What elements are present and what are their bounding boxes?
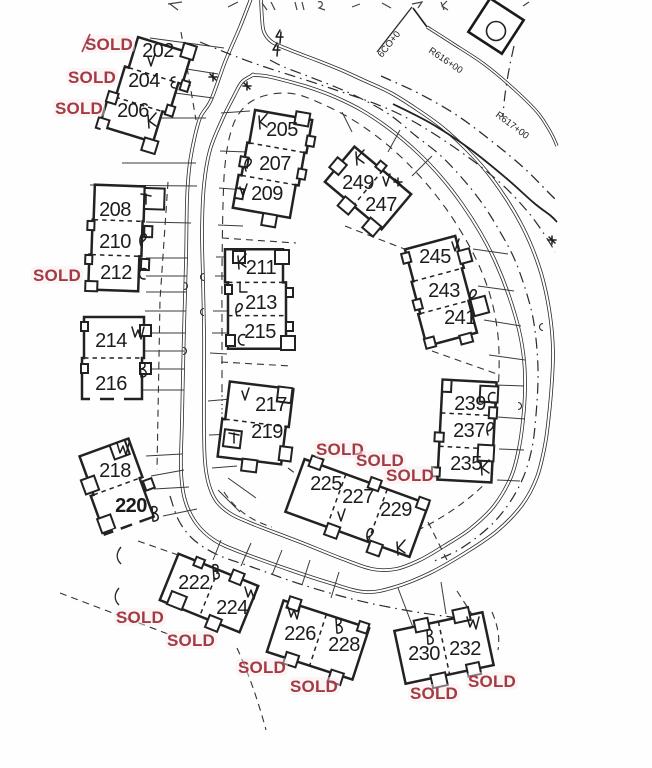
svg-text:232: 232 [449,638,481,660]
svg-text:SOLD: SOLD [68,68,116,87]
svg-text:219: 219 [251,421,283,443]
svg-text:SOLD: SOLD [55,99,103,118]
svg-text:SOLD: SOLD [116,608,164,627]
svg-text:206: 206 [117,100,149,122]
svg-text:247: 247 [365,194,397,216]
svg-text:235: 235 [450,453,482,475]
svg-text:214: 214 [95,330,127,352]
svg-text:217: 217 [255,394,287,416]
svg-text:237: 237 [453,420,485,442]
svg-text:SOLD: SOLD [468,672,516,691]
svg-text:243: 243 [428,280,460,302]
svg-text:202: 202 [142,40,174,62]
svg-text:207: 207 [259,153,291,175]
svg-text:226: 226 [284,623,316,645]
svg-text:239: 239 [454,393,486,415]
svg-text:SOLD: SOLD [410,684,458,703]
svg-text:229: 229 [380,499,412,521]
svg-text:227: 227 [342,486,374,508]
svg-text:225: 225 [310,473,342,495]
svg-text:SOLD: SOLD [290,677,338,696]
svg-text:SOLD: SOLD [238,658,286,677]
svg-text:228: 228 [328,634,360,656]
svg-text:218: 218 [99,460,131,482]
svg-text:222: 222 [178,572,210,594]
svg-text:224: 224 [216,597,248,619]
svg-text:210: 210 [99,231,131,253]
svg-text:249: 249 [342,172,374,194]
svg-text:205: 205 [266,119,298,141]
svg-text:215: 215 [244,321,276,343]
svg-text:SOLD: SOLD [386,466,434,485]
svg-text:SOLD: SOLD [33,266,81,285]
svg-text:220: 220 [115,495,147,517]
svg-text:211: 211 [246,257,277,279]
svg-text:245: 245 [419,246,451,268]
svg-text:208: 208 [99,199,131,221]
svg-text:209: 209 [251,183,283,205]
svg-text:216: 216 [95,373,127,395]
svg-text:241: 241 [444,307,476,329]
svg-text:213: 213 [245,292,277,314]
svg-text:204: 204 [128,70,160,92]
svg-text:212: 212 [100,262,132,284]
svg-text:SOLD: SOLD [85,35,133,54]
svg-text:SOLD: SOLD [167,631,215,650]
svg-text:230: 230 [408,643,440,665]
